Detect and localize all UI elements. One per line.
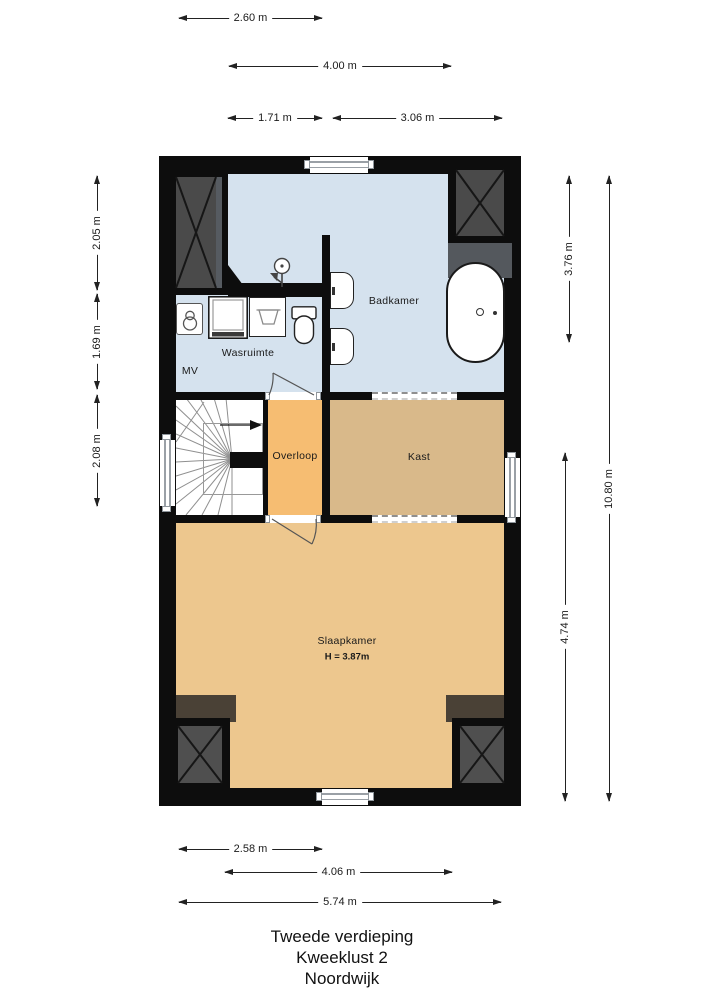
title-line-floor: Tweede verdieping [170,926,514,947]
laundry-sink-icon [249,297,286,337]
window-jamb [507,517,516,523]
wardrobe-bottom-left-icon [170,695,236,792]
dimension-bottom-2: 4.06 m [224,866,453,878]
window-top [310,157,368,173]
wardrobe-bottom-right-icon [446,695,512,792]
dimension-top-3: 1.71 m [227,112,323,124]
label-badkamer: Badkamer [369,295,419,307]
label-wasruimte: Wasruimte [222,347,274,359]
wall-stairs-landing [263,398,268,515]
dimension-left-2: 1.69 m [91,293,103,390]
dimension-top-2: 4.00 m [228,60,452,72]
dimension-right-3: 4.74 m [559,452,571,802]
window-jamb [507,452,516,458]
label-slaapkamer: Slaapkamer [317,635,376,647]
title-line-street: Kweeklust 2 [170,947,514,968]
label-slaapkamer-height: H = 3.87m [325,652,370,663]
shower-icon [266,254,296,294]
floor-plan: Badkamer Wasruimte MV Overloop Kast Slaa… [0,0,707,1000]
dimension-right-1: 3.76 m [563,175,575,343]
dimension-left-1: 2.05 m [91,175,103,291]
plan-title: Tweede verdieping Kweeklust 2 Noordwijk [170,926,514,989]
window-bottom [322,789,368,805]
dimension-bottom-1: 2.58 m [178,843,323,855]
label-kast: Kast [408,451,430,463]
bathtub-icon [446,262,505,363]
dimension-top-1: 2.60 m [178,12,323,24]
window-left [160,440,175,506]
title-line-city: Noordwijk [170,968,514,989]
stairs-icon [176,398,263,515]
dimension-bottom-3: 5.74 m [178,896,502,908]
window-jamb [162,434,171,440]
wardrobe-top-left-icon [168,170,228,297]
window-jamb [316,792,322,801]
dimension-left-3: 2.08 m [91,394,103,507]
dimension-right-2: 10.80 m [603,175,615,802]
window-right [505,458,520,517]
door-arc-laundry [264,358,320,400]
label-overloop: Overloop [272,450,317,462]
washing-machine-icon [208,296,248,339]
dimension-top-4: 3.06 m [332,112,503,124]
window-jamb [368,160,374,169]
wall-shower-corner [228,265,252,297]
boiler-mv-unit-icon [176,303,203,335]
window-jamb [304,160,310,169]
window-jamb [368,792,374,801]
washbasin-top-icon [330,272,354,309]
wall-laundry-bathroom [322,235,330,523]
toilet-icon [291,306,317,345]
kneewall-kast-top [372,392,457,400]
wardrobe-top-right-icon [448,163,512,278]
kneewall-kast-bottom [372,515,457,523]
washbasin-bottom-icon [330,328,354,365]
window-jamb [162,506,171,512]
label-mv: MV [182,365,198,377]
door-arc-bedroom [264,517,320,547]
